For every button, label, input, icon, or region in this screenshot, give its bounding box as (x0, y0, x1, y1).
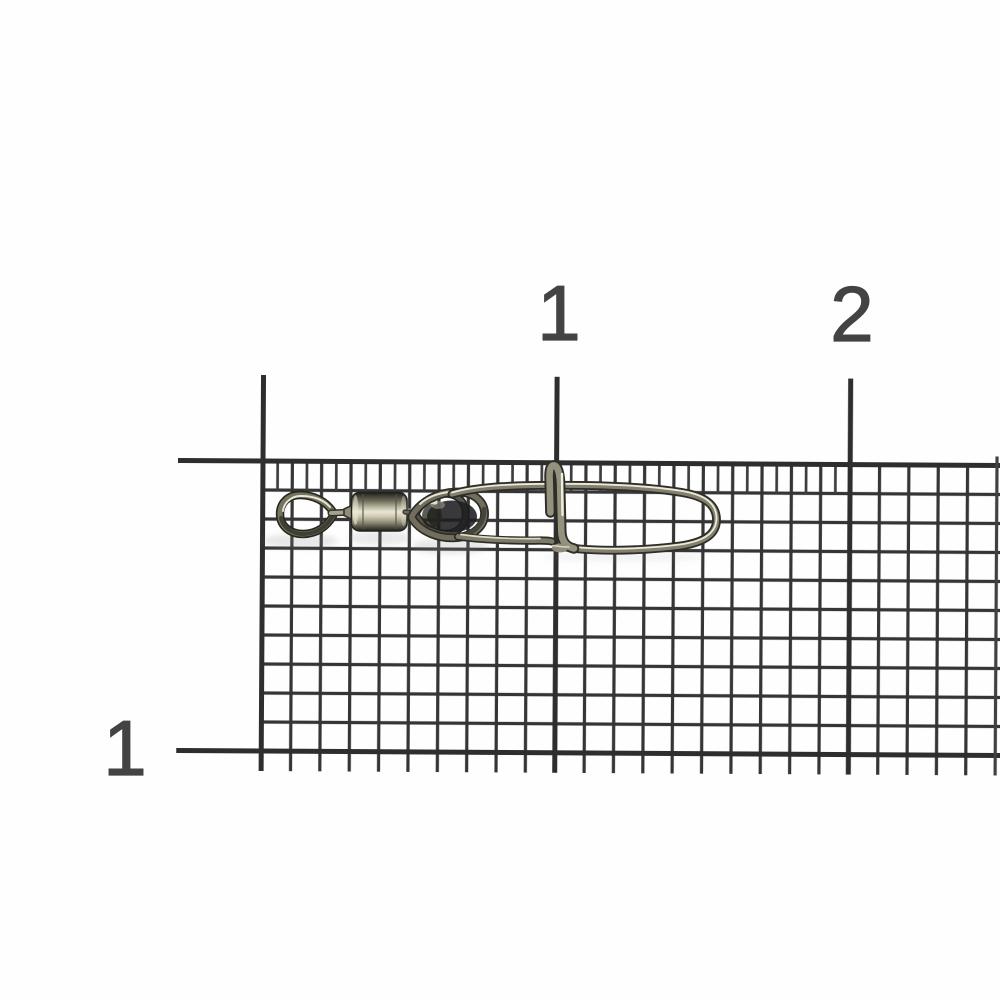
svg-text:1: 1 (537, 269, 580, 357)
svg-text:1: 1 (103, 704, 146, 792)
svg-text:2: 2 (830, 270, 873, 358)
